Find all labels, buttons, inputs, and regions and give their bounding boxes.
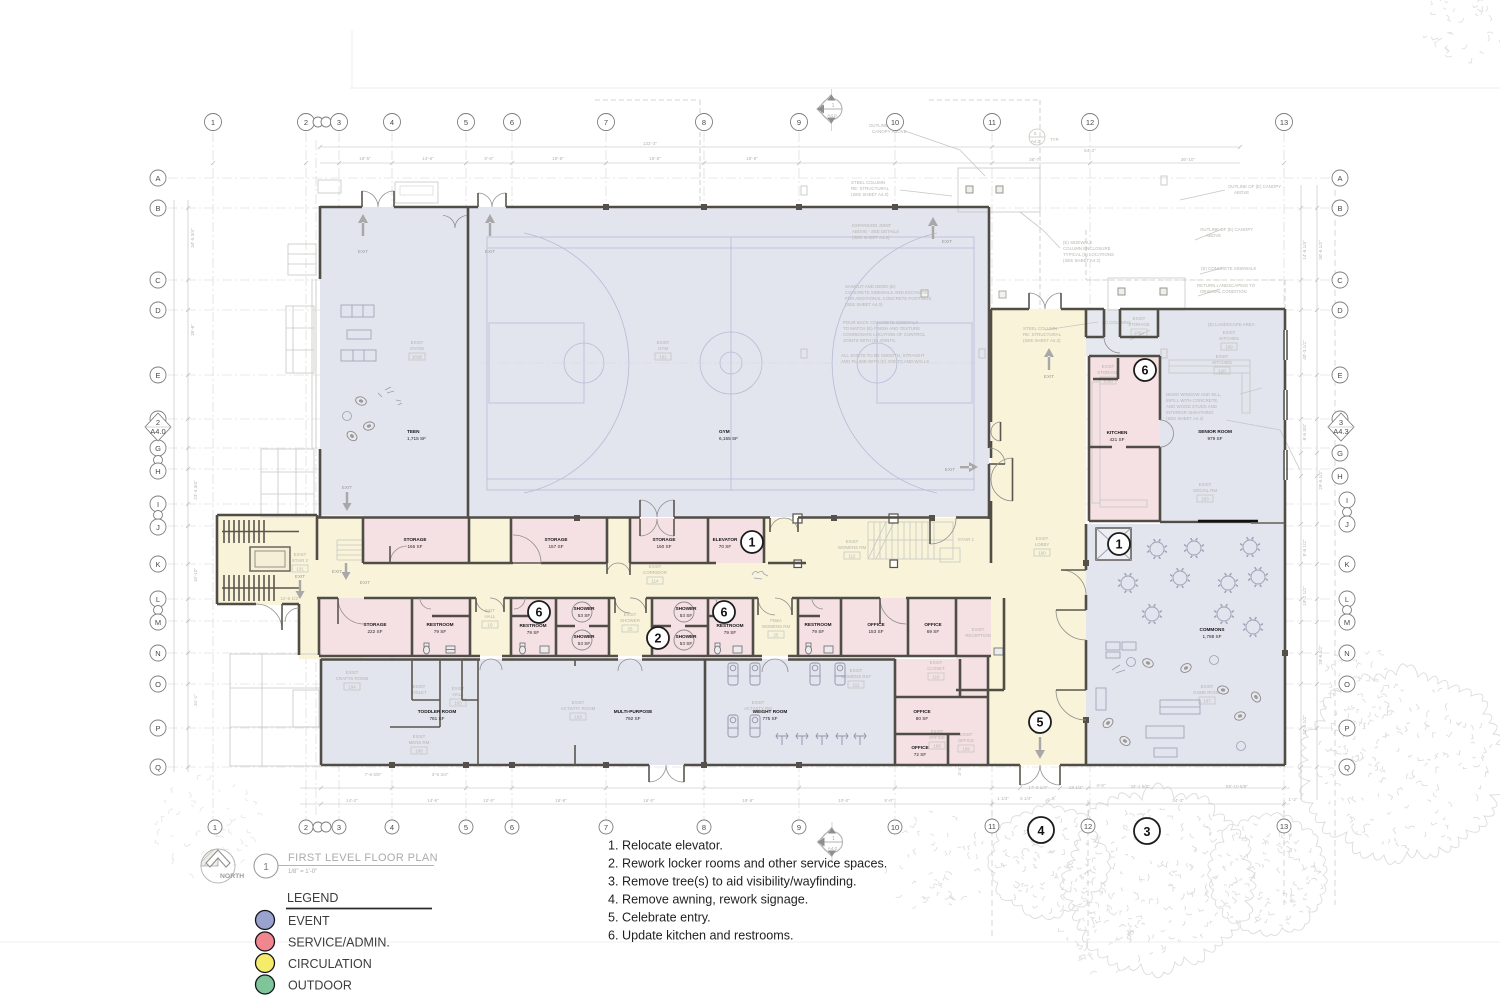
svg-text:34'-5 1/2": 34'-5 1/2" [1302,715,1307,735]
svg-text:EXIST: EXIST [1223,330,1236,335]
svg-text:12: 12 [1084,822,1092,831]
svg-text:TO MATCH (E) FINISH AND TEXTUR: TO MATCH (E) FINISH AND TEXTURE [843,326,920,331]
svg-text:7'-6 5/8": 7'-6 5/8" [365,772,382,777]
svg-text:15'-10": 15'-10" [193,568,198,583]
svg-text:18 1/2": 18 1/2" [1069,785,1084,790]
svg-text:10'-0": 10'-0" [838,798,850,803]
svg-text:ABOVE - SEE DETAILS: ABOVE - SEE DETAILS [852,229,899,234]
svg-text:10: 10 [488,623,493,628]
svg-text:2: 2 [304,823,308,832]
svg-text:6: 6 [536,606,543,620]
svg-text:MULTI-PURPOSE: MULTI-PURPOSE [614,709,652,714]
svg-text:79 SF: 79 SF [434,629,447,634]
svg-text:31'-1": 31'-1" [193,694,198,706]
svg-text:1'-2": 1'-2" [1288,797,1298,802]
svg-text:1 1/4": 1 1/4" [997,796,1009,801]
svg-text:54'-2": 54'-2" [1084,148,1096,153]
svg-text:EXIT: EXIT [358,249,368,254]
svg-text:25: 25 [628,627,633,632]
svg-text:13: 13 [1280,118,1288,127]
svg-text:E: E [1337,371,1342,380]
svg-text:53 SF: 53 SF [680,641,693,646]
svg-text:STORAGE: STORAGE [544,537,567,542]
svg-text:14'-6": 14'-6" [422,156,434,161]
svg-text:M: M [155,618,161,627]
svg-text:ABOVE: ABOVE [1234,190,1249,195]
svg-text:11: 11 [988,822,996,831]
svg-text:SHOWER: SHOWER [573,606,595,611]
svg-text:STORAGE: STORAGE [1097,370,1118,375]
svg-text:(E) CONCRETE SIDEWALK: (E) CONCRETE SIDEWALK [1201,266,1257,271]
svg-text:KITCHEN: KITCHEN [1212,360,1231,365]
svg-text:29'-5 1/2": 29'-5 1/2" [1318,470,1323,490]
svg-text:1: 1 [832,103,835,109]
svg-text:TODDLER ROOM: TODDLER ROOM [418,709,457,714]
svg-text:WOMENS RST: WOMENS RST [841,674,872,679]
svg-text:EXIST: EXIST [1216,354,1229,359]
svg-text:1/8" = 1'-0": 1/8" = 1'-0" [288,869,317,875]
svg-text:SHOWER: SHOWER [573,634,595,639]
svg-text:STAGE: STAGE [410,346,425,351]
svg-text:RE: STRUCTURAL: RE: STRUCTURAL [851,186,890,191]
svg-text:L: L [1345,595,1349,604]
svg-text:OFFICE: OFFICE [913,709,930,714]
svg-text:1: 1 [749,536,756,550]
svg-text:3'-4": 3'-4" [957,766,962,776]
svg-text:Q: Q [1344,763,1350,772]
svg-text:16'-0": 16'-0" [643,798,655,803]
svg-text:SAWCUT AND DEMO (E): SAWCUT AND DEMO (E) [845,284,896,289]
svg-text:STAIR 2: STAIR 2 [292,558,309,563]
svg-text:HALL: HALL [485,614,497,619]
svg-text:17'-0 1/4": 17'-0 1/4" [1028,785,1048,790]
svg-text:LEGEND: LEGEND [287,891,338,905]
svg-text:13: 13 [1280,822,1288,831]
svg-text:103: 103 [1201,497,1209,502]
svg-text:25: 25 [774,633,779,638]
svg-text:EXPANSION JOINT: EXPANSION JOINT [852,223,892,228]
svg-text:222 SF: 222 SF [367,629,382,634]
svg-text:RETURN LANDSCAPING TO: RETURN LANDSCAPING TO [1197,283,1256,288]
svg-text:109: 109 [962,747,970,752]
svg-text:PB&A: PB&A [770,618,782,623]
svg-text:SHOWER: SHOWER [675,606,697,611]
svg-text:131: 131 [296,567,304,572]
svg-text:SERVICE/ADMIN.: SERVICE/ADMIN. [288,936,390,950]
svg-text:EXIST: EXIST [1201,684,1214,689]
svg-text:STAIR 1: STAIR 1 [958,537,975,542]
svg-text:ALL JOINTS TO BE SMOOTH, STRAI: ALL JOINTS TO BE SMOOTH, STRAIGHT [841,353,925,358]
svg-text:6,155 SF: 6,155 SF [719,436,738,441]
svg-text:3: 3 [1144,825,1151,839]
svg-text:L: L [156,595,160,604]
svg-text:SENIOR ROOM: SENIOR ROOM [1198,429,1232,434]
svg-text:INTERIOR SHEATHING: INTERIOR SHEATHING [1166,410,1214,415]
svg-text:RE: STRUCTURAL: RE: STRUCTURAL [1023,332,1062,337]
svg-text:OFFICE: OFFICE [911,745,928,750]
svg-text:A4.3: A4.3 [1333,427,1348,436]
svg-text:6: 6 [721,606,728,620]
svg-text:3: 3 [337,118,341,127]
svg-text:CANOPY ABOVE: CANOPY ABOVE [872,129,907,134]
svg-text:6: 6 [510,823,514,832]
svg-text:72 SF: 72 SF [914,752,927,757]
svg-text:ORIGINAL CONDITION: ORIGINAL CONDITION [1200,289,1247,294]
svg-text:(E) COLUMNS: (E) COLUMNS [1102,320,1131,325]
svg-text:18'-8": 18'-8" [555,798,567,803]
svg-text:FIRST LEVEL FLOOR PLAN: FIRST LEVEL FLOOR PLAN [288,852,438,864]
svg-text:EXIST: EXIST [930,660,943,665]
svg-text:8'-8 1/2": 8'-8 1/2" [1302,539,1307,556]
svg-text:MENS RM: MENS RM [409,740,430,745]
svg-text:79 SF: 79 SF [724,630,737,635]
svg-text:(SEE SHEET A4.2): (SEE SHEET A4.2) [1166,416,1204,421]
svg-text:69 SF: 69 SF [927,629,940,634]
svg-text:34'-3": 34'-3" [1172,798,1184,803]
svg-text:4'-0": 4'-0" [1096,783,1106,788]
svg-text:2: 2 [655,632,662,646]
svg-text:CORRIDOR: CORRIDOR [643,570,667,575]
svg-text:34'-1 5/8": 34'-1 5/8" [1130,784,1150,789]
svg-text:COLUMN ENCLOSURE: COLUMN ENCLOSURE [1063,246,1111,251]
svg-text:4: 4 [390,823,394,832]
svg-text:107: 107 [1203,699,1211,704]
svg-text:29'-6 1/2": 29'-6 1/2" [1318,645,1323,665]
svg-text:WOMENS RM: WOMENS RM [838,545,867,550]
svg-text:8: 8 [702,823,706,832]
svg-text:O: O [155,680,161,689]
svg-text:(SEE SHEET A4.0): (SEE SHEET A4.0) [845,302,883,307]
svg-text:34'-5 3/4": 34'-5 3/4" [190,228,195,248]
svg-text:6'-6 3/4": 6'-6 3/4" [1302,423,1307,440]
svg-text:(E) SIDEWALK: (E) SIDEWALK [1063,240,1093,245]
svg-text:8: 8 [702,118,706,127]
svg-text:JOINTS WITH (E) JOINTS.: JOINTS WITH (E) JOINTS. [843,338,896,343]
svg-text:EXIST: EXIST [972,627,985,632]
svg-text:12: 12 [1086,118,1094,127]
svg-text:6: 6 [1142,364,1149,378]
svg-text:105A: 105A [1134,331,1144,336]
svg-text:35'-6": 35'-6" [190,324,195,336]
svg-text:40'-3 1/2": 40'-3 1/2" [1302,340,1307,360]
svg-text:G: G [1337,449,1343,458]
svg-text:421 SF: 421 SF [1109,437,1124,442]
svg-text:TYPICAL (5) LOCATIONS: TYPICAL (5) LOCATIONS [1063,252,1114,257]
svg-text:3. Remove tree(s) to aid visib: 3. Remove tree(s) to aid visibility/wayf… [608,875,856,889]
svg-text:EXIT: EXIT [295,574,305,579]
svg-text:N: N [155,649,160,658]
svg-text:B: B [1337,204,1342,213]
svg-text:7: 7 [604,823,608,832]
svg-text:18'-8": 18'-8" [746,156,758,161]
svg-text:(E) LANDSCAPE AREA: (E) LANDSCAPE AREA [1208,322,1255,327]
svg-text:11'-6 1/2": 11'-6 1/2" [280,596,299,601]
svg-text:OFFICE: OFFICE [924,622,941,627]
svg-text:19'-2 1/2": 19'-2 1/2" [1302,586,1307,606]
svg-text:CONCRETE SIDEWALK AND EXCAVATE: CONCRETE SIDEWALK AND EXCAVATE [845,290,927,295]
svg-text:G: G [155,444,161,453]
svg-text:OFFICE: OFFICE [867,622,884,627]
svg-text:6: 6 [510,118,514,127]
svg-text:101B: 101B [412,355,422,360]
svg-text:70 SF: 70 SF [719,544,732,549]
svg-text:30'-6 1/2": 30'-6 1/2" [1318,240,1323,260]
svg-text:N: N [1344,649,1349,658]
svg-text:101: 101 [659,355,667,360]
svg-text:FOR ADDITIONAL CONCRETE FOOTIN: FOR ADDITIONAL CONCRETE FOOTINGS [845,296,932,301]
svg-text:1: 1 [832,836,835,842]
svg-text:OFFICE: OFFICE [958,738,974,743]
svg-text:6. Update kitchen and restroom: 6. Update kitchen and restrooms. [608,929,794,943]
svg-text:EVENT: EVENT [288,914,330,928]
svg-text:KITCHEN: KITCHEN [1219,336,1238,341]
svg-text:D: D [1337,306,1343,315]
svg-text:4: 4 [1038,824,1045,838]
svg-text:EXIT: EXIT [485,608,495,613]
svg-text:NORTH: NORTH [220,873,244,880]
svg-text:14'-2": 14'-2" [346,798,358,803]
svg-text:K: K [155,560,160,569]
svg-text:STORAGE: STORAGE [1128,322,1149,327]
svg-text:GYM: GYM [719,429,730,434]
svg-text:H: H [155,467,160,476]
svg-text:112: 112 [849,554,857,559]
svg-text:18'-8": 18'-8" [649,156,661,161]
svg-text:STORAGE: STORAGE [652,537,675,542]
svg-text:10: 10 [891,823,899,832]
svg-text:109: 109 [1225,345,1233,350]
svg-text:STORAGE: STORAGE [403,537,426,542]
svg-text:EXIST: EXIST [1199,482,1212,487]
svg-text:EXIST: EXIST [411,340,424,345]
svg-text:C: C [155,276,161,285]
svg-text:J: J [156,523,160,532]
svg-text:DEMO WINDOW AND SILL,: DEMO WINDOW AND SILL, [1166,392,1221,397]
svg-text:CIRCULATION: CIRCULATION [288,957,372,971]
svg-text:14'-6": 14'-6" [427,798,439,803]
svg-text:104: 104 [348,685,356,690]
svg-text:EXIT: EXIT [360,580,370,585]
svg-text:CLOSET: CLOSET [927,666,945,671]
svg-text:18'-8": 18'-8" [742,798,754,803]
svg-text:EXIST: EXIST [1133,316,1146,321]
svg-text:A4.0: A4.0 [150,427,165,436]
svg-text:160 SF: 160 SF [656,544,671,549]
svg-text:2: 2 [304,118,308,127]
svg-text:RESTROOM: RESTROOM [519,623,546,628]
svg-text:A: A [155,174,160,183]
svg-text:5: 5 [464,118,468,127]
svg-text:A4.0: A4.0 [1031,139,1041,144]
svg-text:781 SF: 781 SF [429,716,444,721]
svg-text:OUTLINE OF (E) CANOPY: OUTLINE OF (E) CANOPY [1200,227,1253,232]
svg-text:WEIGHT ROOM: WEIGHT ROOM [753,709,788,714]
svg-text:EXIST: EXIST [346,670,359,675]
svg-text:3: 3 [1339,418,1343,427]
svg-text:P: P [1344,724,1349,733]
svg-text:103: 103 [454,701,462,706]
svg-text:14'-6 1/4": 14'-6 1/4" [1302,240,1307,260]
svg-text:OUTLINE OF (E) CANOPY: OUTLINE OF (E) CANOPY [1228,184,1281,189]
svg-text:POUR BACK CONCRETE SIDEWALK: POUR BACK CONCRETE SIDEWALK [843,320,919,325]
svg-text:ELEVATOR: ELEVATOR [713,537,738,542]
svg-text:H: H [1337,472,1342,481]
svg-text:D: D [155,306,161,315]
svg-text:9: 9 [797,118,801,127]
svg-text:(SEE SHEET A4.2): (SEE SHEET A4.2) [1063,258,1101,263]
svg-text:79 SF: 79 SF [812,629,825,634]
svg-text:EXIST: EXIST [1036,536,1049,541]
svg-text:166 SF: 166 SF [407,544,422,549]
svg-text:EXIT: EXIT [485,249,495,254]
svg-text:TYP.: TYP. [1050,137,1059,142]
svg-text:TEEN: TEEN [407,429,420,434]
svg-text:10'-0": 10'-0" [483,798,495,803]
svg-text:K: K [1344,560,1349,569]
svg-text:5 1/4": 5 1/4" [1020,796,1032,801]
svg-text:SOCIAL RM: SOCIAL RM [1193,488,1217,493]
svg-text:EXIST: EXIST [294,552,307,557]
svg-text:1,788 SF: 1,788 SF [1202,634,1221,639]
svg-text:EXIT: EXIT [342,485,352,490]
svg-text:EXIST: EXIST [960,732,973,737]
svg-text:SHOWER: SHOWER [675,634,697,639]
svg-text:80 SF: 80 SF [916,716,929,721]
svg-text:1: 1 [211,118,215,127]
svg-text:EXIT: EXIT [945,467,955,472]
svg-text:5: 5 [1037,716,1044,730]
svg-text:18'-8": 18'-8" [552,156,564,161]
svg-text:EXIST: EXIST [572,700,585,705]
svg-text:O: O [1344,680,1350,689]
svg-text:A4.0: A4.0 [827,113,837,118]
svg-text:108: 108 [933,744,941,749]
svg-text:RECEPTION: RECEPTION [965,633,991,638]
svg-text:103: 103 [574,715,582,720]
svg-text:CRAFTS ROOM: CRAFTS ROOM [336,676,369,681]
svg-text:A: A [1337,174,1342,183]
svg-text:4. Remove awning, rework signa: 4. Remove awning, rework signage. [608,893,808,907]
svg-text:COMMONS: COMMONS [1200,627,1225,632]
svg-text:5: 5 [464,823,468,832]
svg-text:AND WOOD STUDS AND: AND WOOD STUDS AND [1166,404,1217,409]
svg-text:36'-10": 36'-10" [1181,157,1196,162]
svg-text:I: I [1346,496,1348,505]
svg-text:EXIT: EXIT [942,239,952,244]
svg-text:EXIT: EXIT [1044,374,1054,379]
svg-text:53 SF: 53 SF [578,641,591,646]
svg-text:23'-4 3/4": 23'-4 3/4" [193,480,198,500]
svg-text:OFFICE: OFFICE [929,735,945,740]
svg-text:53 SF: 53 SF [680,613,693,618]
svg-text:2: 2 [156,418,160,427]
svg-text:9: 9 [797,823,801,832]
svg-text:A4.0: A4.0 [828,846,838,851]
svg-text:EXIST: EXIST [846,539,859,544]
svg-text:LOBBY: LOBBY [1035,542,1050,547]
svg-text:111: 111 [853,683,860,688]
svg-text:5'-0": 5'-0" [884,798,894,803]
svg-text:792 SF: 792 SF [625,716,640,721]
svg-text:36'-7": 36'-7" [1029,157,1041,162]
svg-text:1,715 SF: 1,715 SF [407,436,426,441]
svg-text:132'-3": 132'-3" [643,141,658,146]
svg-text:53 SF: 53 SF [578,613,591,618]
svg-text:110: 110 [933,675,941,680]
svg-text:3'-5 3/4": 3'-5 3/4" [432,772,449,777]
svg-text:11: 11 [988,118,996,127]
svg-text:I: I [157,500,159,509]
svg-text:4: 4 [390,118,394,127]
svg-text:INFILL WITH CONCRETE,: INFILL WITH CONCRETE, [1166,398,1219,403]
svg-text:ABOVE: ABOVE [1206,233,1221,238]
svg-text:79 SF: 79 SF [527,630,540,635]
svg-text:3: 3 [337,823,341,832]
svg-text:7: 7 [604,118,608,127]
svg-text:EXIST: EXIST [657,340,670,345]
svg-text:J: J [1345,520,1349,529]
svg-text:EXIST: EXIST [1102,364,1115,369]
svg-text:STEEL COLUMN: STEEL COLUMN [851,180,885,185]
svg-text:114: 114 [652,579,660,584]
svg-text:GAME ROOM: GAME ROOM [1193,690,1221,695]
svg-text:STORAGE: STORAGE [363,622,386,627]
svg-text:(SEE SHEET A4.0): (SEE SHEET A4.0) [851,192,889,197]
svg-text:(SEE SHEET A4.0): (SEE SHEET A4.0) [852,235,890,240]
svg-text:P: P [155,724,160,733]
svg-text:EXIST: EXIST [752,700,765,705]
svg-text:EXIST: EXIST [413,734,426,739]
svg-text:SHOWER: SHOWER [620,618,640,623]
svg-text:979 SF: 979 SF [1207,436,1222,441]
svg-text:(SEE SHEET A4.2): (SEE SHEET A4.2) [1023,338,1061,343]
svg-text:WOMENS RM: WOMENS RM [762,624,791,629]
svg-text:2. Rework locker rooms and oth: 2. Rework locker rooms and other service… [608,857,887,871]
svg-text:106: 106 [415,749,423,754]
svg-text:157 SF: 157 SF [548,544,563,549]
svg-text:RESTROOM: RESTROOM [804,622,831,627]
svg-text:RESTROOM: RESTROOM [716,623,743,628]
svg-text:775 SF: 775 SF [762,716,777,721]
svg-text:153 SF: 153 SF [868,629,883,634]
svg-text:1. Relocate elevator.: 1. Relocate elevator. [608,839,723,853]
svg-text:19'-5": 19'-5" [359,156,371,161]
svg-text:B: B [155,204,160,213]
svg-text:OUTDOOR: OUTDOOR [288,979,352,993]
svg-text:M: M [1344,618,1350,627]
svg-text:EXIST: EXIST [850,668,863,673]
svg-text:55'-10 5/8": 55'-10 5/8" [1226,784,1248,789]
svg-text:Q: Q [155,763,161,772]
svg-text:E: E [155,371,160,380]
svg-text:STEEL COLUMN: STEEL COLUMN [1023,326,1057,331]
svg-text:EXIST: EXIST [649,564,662,569]
svg-text:5. Celebrate entry.: 5. Celebrate entry. [608,911,711,925]
svg-text:C: C [1337,276,1343,285]
svg-text:TOILET: TOILET [411,690,427,695]
svg-text:EXIT: EXIT [332,569,342,574]
svg-text:EXIST: EXIST [413,684,426,689]
svg-text:8'-8": 8'-8" [484,156,494,161]
svg-text:10: 10 [891,118,899,127]
svg-text:ACTIVITY ROOM: ACTIVITY ROOM [561,706,596,711]
svg-text:100: 100 [1038,551,1046,556]
svg-text:KITCHEN: KITCHEN [1107,430,1128,435]
svg-text:COORDINATE LOCATION OF CONTROL: COORDINATE LOCATION OF CONTROL [843,332,926,337]
svg-text:1: 1 [263,862,269,873]
svg-text:GYM: GYM [658,346,668,351]
svg-text:1: 1 [1116,538,1123,552]
